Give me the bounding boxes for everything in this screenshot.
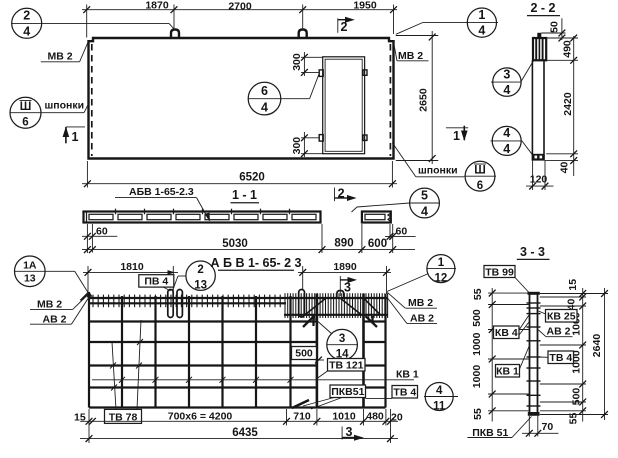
svg-text:1890: 1890 bbox=[333, 261, 357, 273]
svg-text:6: 6 bbox=[477, 180, 483, 192]
svg-text:МВ 2: МВ 2 bbox=[37, 299, 62, 311]
svg-text:60: 60 bbox=[396, 226, 408, 238]
svg-text:1: 1 bbox=[72, 130, 79, 144]
svg-text:600: 600 bbox=[368, 238, 387, 250]
svg-text:МВ 2: МВ 2 bbox=[408, 297, 433, 309]
svg-text:КВ 25: КВ 25 bbox=[547, 311, 576, 323]
svg-text:50: 50 bbox=[549, 21, 561, 33]
svg-text:АВ 2: АВ 2 bbox=[43, 314, 67, 326]
svg-text:1А: 1А bbox=[23, 260, 37, 272]
svg-text:ПКВ 51: ПКВ 51 bbox=[472, 427, 508, 439]
svg-text:3: 3 bbox=[346, 425, 353, 439]
svg-text:ТВ 4: ТВ 4 bbox=[393, 387, 416, 399]
svg-text:55: 55 bbox=[568, 413, 580, 425]
svg-text:500: 500 bbox=[295, 348, 313, 360]
svg-text:13: 13 bbox=[24, 273, 36, 285]
svg-text:20: 20 bbox=[391, 412, 403, 424]
svg-text:МВ 2: МВ 2 bbox=[398, 50, 423, 62]
svg-text:6435: 6435 bbox=[232, 427, 258, 439]
svg-text:КВ 1: КВ 1 bbox=[496, 366, 519, 378]
svg-text:1000: 1000 bbox=[471, 332, 483, 356]
svg-text:55: 55 bbox=[472, 288, 484, 300]
svg-text:3 - 3: 3 - 3 bbox=[520, 245, 545, 259]
svg-text:1870: 1870 bbox=[145, 0, 169, 12]
svg-text:60: 60 bbox=[96, 226, 108, 238]
svg-text:А Б В 1- 65- 2 3: А Б В 1- 65- 2 3 bbox=[211, 256, 302, 270]
svg-text:КВ 1: КВ 1 bbox=[396, 369, 419, 381]
svg-text:Ш: Ш bbox=[474, 165, 486, 177]
svg-text:490: 490 bbox=[561, 40, 573, 58]
svg-text:500: 500 bbox=[471, 309, 483, 327]
svg-text:12: 12 bbox=[435, 272, 448, 284]
svg-text:890: 890 bbox=[334, 238, 353, 250]
svg-text:2 - 2: 2 - 2 bbox=[530, 1, 555, 15]
svg-text:40: 40 bbox=[558, 162, 570, 174]
svg-text:1 - 1: 1 - 1 bbox=[232, 188, 257, 202]
svg-text:4: 4 bbox=[478, 24, 485, 38]
svg-text:шпонки: шпонки bbox=[418, 165, 458, 177]
svg-text:1: 1 bbox=[438, 257, 445, 269]
svg-text:ПВ 4: ПВ 4 bbox=[144, 276, 168, 288]
svg-text:3: 3 bbox=[344, 281, 351, 295]
svg-text:2640: 2640 bbox=[591, 334, 603, 358]
svg-text:2: 2 bbox=[23, 9, 30, 23]
svg-text:1010: 1010 bbox=[332, 411, 356, 423]
svg-text:шпонки: шпонки bbox=[45, 100, 85, 112]
svg-text:300: 300 bbox=[291, 53, 303, 71]
svg-text:15: 15 bbox=[567, 279, 579, 291]
svg-text:2: 2 bbox=[197, 264, 203, 276]
svg-text:13: 13 bbox=[194, 280, 207, 292]
svg-text:МВ 2: МВ 2 bbox=[48, 51, 73, 63]
svg-text:480: 480 bbox=[366, 411, 384, 423]
svg-text:6: 6 bbox=[22, 117, 28, 129]
svg-text:4: 4 bbox=[23, 25, 30, 39]
svg-text:ТВ 4: ТВ 4 bbox=[549, 352, 572, 364]
svg-text:1000: 1000 bbox=[471, 365, 483, 389]
svg-text:4: 4 bbox=[436, 385, 443, 397]
svg-text:ПКВ51: ПКВ51 bbox=[331, 386, 364, 398]
svg-text:АВ 2: АВ 2 bbox=[547, 326, 571, 338]
svg-text:4: 4 bbox=[503, 142, 510, 156]
svg-text:500: 500 bbox=[571, 388, 583, 406]
svg-text:Ш: Ш bbox=[20, 101, 32, 113]
svg-text:5: 5 bbox=[421, 188, 428, 202]
svg-text:40: 40 bbox=[566, 299, 578, 311]
svg-text:4: 4 bbox=[421, 204, 428, 218]
svg-text:4: 4 bbox=[503, 83, 510, 97]
svg-text:ТВ 121: ТВ 121 bbox=[329, 360, 364, 372]
svg-text:3: 3 bbox=[503, 67, 510, 81]
svg-text:700х6 = 4200: 700х6 = 4200 bbox=[168, 411, 233, 423]
svg-text:6520: 6520 bbox=[239, 172, 265, 184]
svg-text:15: 15 bbox=[74, 412, 86, 424]
svg-text:710: 710 bbox=[293, 411, 311, 423]
svg-text:1: 1 bbox=[478, 8, 485, 22]
svg-text:КВ 4: КВ 4 bbox=[495, 327, 518, 339]
svg-text:70: 70 bbox=[542, 421, 554, 433]
svg-text:2420: 2420 bbox=[562, 92, 574, 116]
svg-text:55: 55 bbox=[472, 408, 484, 420]
svg-text:2: 2 bbox=[341, 20, 348, 34]
svg-text:3: 3 bbox=[339, 333, 345, 345]
svg-text:4: 4 bbox=[261, 100, 268, 114]
svg-text:300: 300 bbox=[291, 137, 303, 155]
svg-text:1810: 1810 bbox=[120, 261, 144, 273]
svg-text:АБВ 1-65-2.3: АБВ 1-65-2.3 bbox=[129, 186, 194, 198]
svg-text:ТВ 99: ТВ 99 bbox=[485, 266, 514, 278]
svg-text:4: 4 bbox=[503, 126, 510, 140]
svg-text:АВ 2: АВ 2 bbox=[410, 313, 434, 325]
svg-text:2700: 2700 bbox=[228, 1, 252, 13]
svg-text:6: 6 bbox=[261, 84, 268, 98]
svg-text:2: 2 bbox=[338, 187, 345, 201]
svg-text:11: 11 bbox=[433, 400, 446, 412]
svg-text:5030: 5030 bbox=[222, 238, 248, 250]
svg-text:2650: 2650 bbox=[417, 88, 429, 112]
svg-text:1: 1 bbox=[453, 129, 460, 143]
svg-text:1950: 1950 bbox=[353, 0, 377, 12]
svg-text:120: 120 bbox=[530, 174, 548, 186]
